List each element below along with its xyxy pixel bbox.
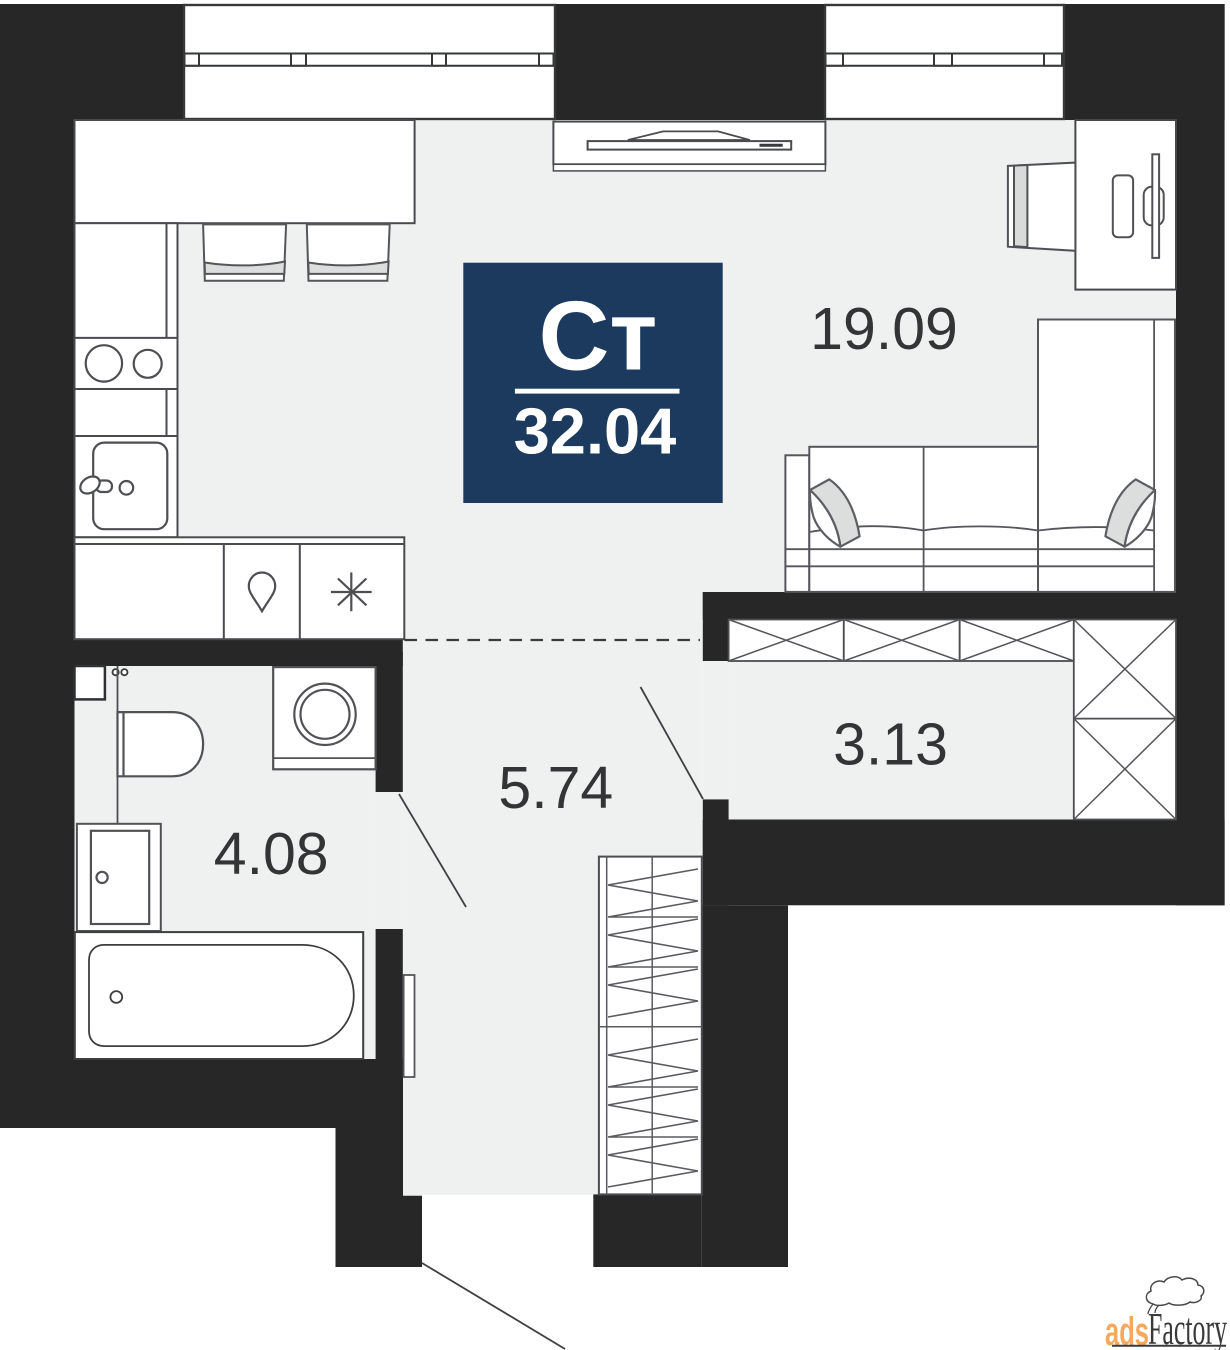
svg-text:Factory: Factory	[1148, 1303, 1227, 1350]
svg-text:Ст: Ст	[539, 281, 658, 391]
svg-text:32.04: 32.04	[514, 395, 677, 468]
svg-text:3.13: 3.13	[833, 712, 948, 778]
svg-text:19.09: 19.09	[810, 296, 958, 362]
svg-text:ads: ads	[1105, 1310, 1149, 1350]
svg-text:5.74: 5.74	[498, 755, 613, 821]
svg-text:4.08: 4.08	[214, 821, 329, 887]
